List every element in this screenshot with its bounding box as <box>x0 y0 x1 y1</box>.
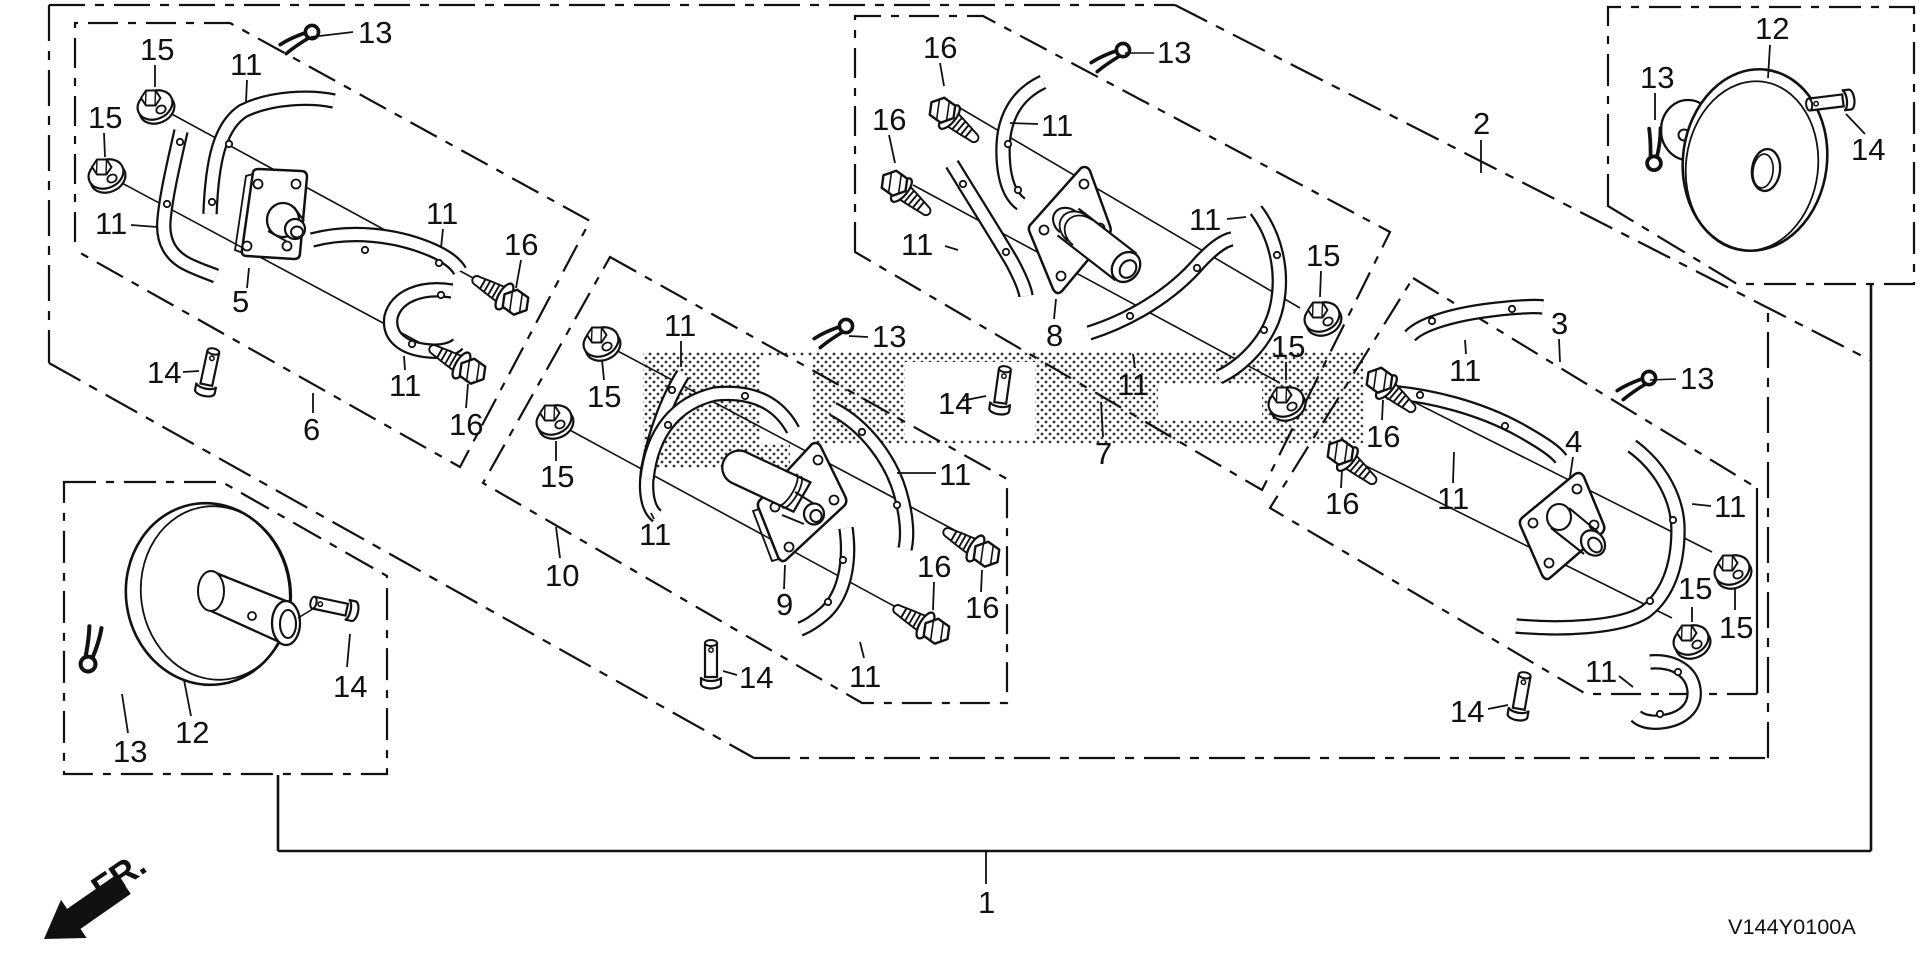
svg-text:5: 5 <box>232 284 249 319</box>
svg-text:11: 11 <box>1714 489 1746 524</box>
svg-text:14: 14 <box>938 386 972 421</box>
svg-text:6: 6 <box>303 412 320 447</box>
svg-text:7: 7 <box>1095 436 1112 471</box>
svg-text:13: 13 <box>1157 35 1191 70</box>
svg-text:11: 11 <box>1437 481 1469 516</box>
svg-text:1: 1 <box>978 885 995 920</box>
svg-text:16: 16 <box>1366 419 1400 454</box>
svg-text:3: 3 <box>1551 306 1568 341</box>
svg-text:16: 16 <box>449 407 483 442</box>
svg-text:16: 16 <box>917 549 951 584</box>
svg-text:16: 16 <box>872 102 906 137</box>
svg-text:8: 8 <box>1046 318 1063 353</box>
svg-text:15: 15 <box>140 32 174 67</box>
svg-text:13: 13 <box>113 734 147 769</box>
svg-text:15: 15 <box>587 379 621 414</box>
svg-text:12: 12 <box>1755 11 1789 46</box>
svg-text:13: 13 <box>872 319 906 354</box>
svg-text:15: 15 <box>540 459 574 494</box>
svg-text:11: 11 <box>664 308 696 343</box>
svg-text:11: 11 <box>1449 353 1481 388</box>
svg-text:14: 14 <box>1851 132 1885 167</box>
svg-text:15: 15 <box>88 100 122 135</box>
svg-text:10: 10 <box>545 558 579 593</box>
svg-text:11: 11 <box>849 659 881 694</box>
svg-text:11: 11 <box>230 47 262 82</box>
svg-text:11: 11 <box>1117 367 1149 402</box>
svg-text:15: 15 <box>1719 610 1753 645</box>
svg-text:15: 15 <box>1678 571 1712 606</box>
svg-text:V144Y0100A: V144Y0100A <box>1728 914 1856 939</box>
svg-text:15: 15 <box>1271 329 1305 364</box>
svg-text:11: 11 <box>389 368 421 403</box>
svg-text:12: 12 <box>175 715 209 750</box>
svg-text:14: 14 <box>1450 694 1484 729</box>
svg-text:4: 4 <box>1565 424 1582 459</box>
svg-text:16: 16 <box>1325 486 1359 521</box>
svg-text:14: 14 <box>333 669 367 704</box>
svg-text:11: 11 <box>1189 202 1221 237</box>
svg-text:11: 11 <box>1585 654 1617 689</box>
svg-text:13: 13 <box>1640 60 1674 95</box>
svg-text:15: 15 <box>1306 238 1340 273</box>
svg-text:2: 2 <box>1473 106 1490 141</box>
svg-text:16: 16 <box>965 590 999 625</box>
svg-text:11: 11 <box>426 196 458 231</box>
svg-text:11: 11 <box>939 457 971 492</box>
svg-text:11: 11 <box>901 227 933 262</box>
svg-text:16: 16 <box>504 227 538 262</box>
svg-text:16: 16 <box>923 30 957 65</box>
svg-text:14: 14 <box>147 355 181 390</box>
svg-text:14: 14 <box>739 660 773 695</box>
svg-text:11: 11 <box>95 206 127 241</box>
svg-text:13: 13 <box>358 15 392 50</box>
svg-text:11: 11 <box>639 517 671 552</box>
svg-text:9: 9 <box>776 587 793 622</box>
svg-text:11: 11 <box>1041 108 1073 143</box>
svg-text:13: 13 <box>1680 361 1714 396</box>
